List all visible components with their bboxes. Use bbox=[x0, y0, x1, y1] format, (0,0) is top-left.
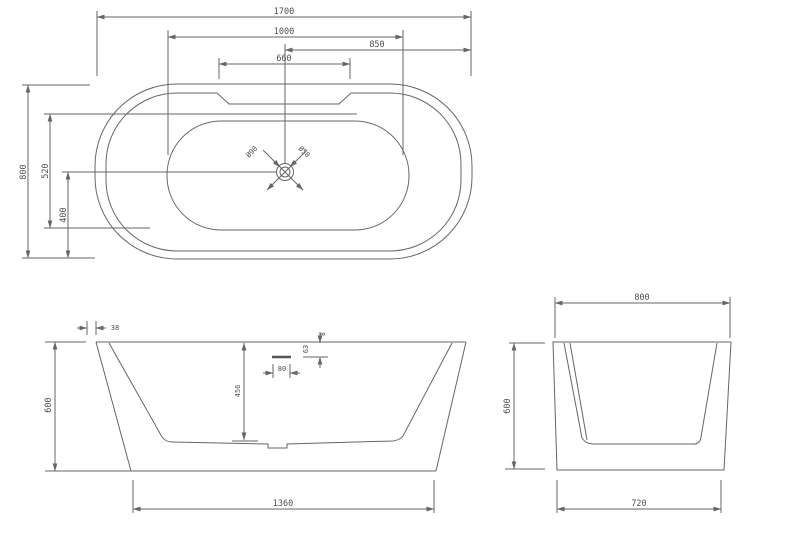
bathtub-drawing: Ø90 Ø50 1700 1000 850 660 bbox=[0, 0, 800, 543]
side-outer-profile bbox=[553, 342, 731, 470]
dim-label-38: 38 bbox=[111, 324, 119, 332]
drain-leader-bottom-right bbox=[290, 177, 303, 190]
side-view: 800 600 720 bbox=[503, 293, 731, 513]
dim-label-800-side: 800 bbox=[634, 293, 649, 303]
dim-bottom-length: 1360 bbox=[133, 480, 434, 513]
dim-center-to-right: 850 bbox=[285, 40, 471, 50]
drain-inner-diameter-label: Ø50 bbox=[297, 145, 312, 160]
side-inner-wall-right bbox=[701, 343, 717, 437]
dim-side-bottom-width: 720 bbox=[557, 480, 721, 513]
dim-label-660: 660 bbox=[276, 54, 291, 64]
dim-label-63: 63 bbox=[302, 345, 310, 353]
outer-wall-left bbox=[96, 342, 131, 471]
dim-label-600-side: 600 bbox=[503, 398, 513, 413]
dim-label-800: 800 bbox=[19, 164, 29, 179]
drain-outer-diameter-label: Ø90 bbox=[245, 145, 260, 160]
dim-label-456: 456 bbox=[234, 385, 242, 398]
dim-drain-offset: 400 bbox=[59, 172, 69, 258]
dim-rim-lip: 38 bbox=[77, 321, 119, 335]
dim-label-520: 520 bbox=[41, 163, 51, 178]
dim-label-80: 80 bbox=[278, 365, 286, 373]
overflow-detail: 80 63 8 bbox=[263, 332, 328, 378]
dim-label-720: 720 bbox=[631, 499, 646, 509]
outer-wall-right bbox=[436, 342, 466, 471]
side-inner-wall-left-2 bbox=[570, 343, 587, 440]
dim-inner-depth: 456 bbox=[232, 343, 258, 441]
dim-label-1000: 1000 bbox=[274, 27, 294, 37]
inner-basin-profile bbox=[109, 343, 452, 448]
drain-leader-bottom-left bbox=[267, 177, 280, 190]
drain-symbol: Ø90 Ø50 bbox=[245, 145, 312, 190]
drain-leader-left bbox=[263, 150, 280, 167]
dim-label-850: 850 bbox=[369, 40, 384, 50]
top-view: Ø90 Ø50 1700 1000 850 660 bbox=[19, 7, 472, 259]
dim-overall-length: 1700 bbox=[97, 7, 471, 76]
dim-inner-width: 520 bbox=[41, 114, 357, 228]
front-view: 38 600 456 80 63 8 bbox=[44, 321, 466, 513]
dim-label-1700: 1700 bbox=[274, 7, 294, 17]
dim-side-height: 600 bbox=[503, 343, 545, 469]
technical-drawing-sheet: Ø90 Ø50 1700 1000 850 660 bbox=[0, 0, 800, 543]
dim-label-600-front: 600 bbox=[44, 397, 54, 412]
side-inner-bottom bbox=[582, 437, 701, 444]
dim-side-width: 800 bbox=[555, 293, 730, 338]
dim-label-overflow-small: 8 bbox=[320, 332, 327, 336]
dim-front-height: 600 bbox=[44, 342, 55, 471]
dim-label-400: 400 bbox=[59, 207, 69, 222]
dim-label-1360: 1360 bbox=[273, 499, 293, 509]
